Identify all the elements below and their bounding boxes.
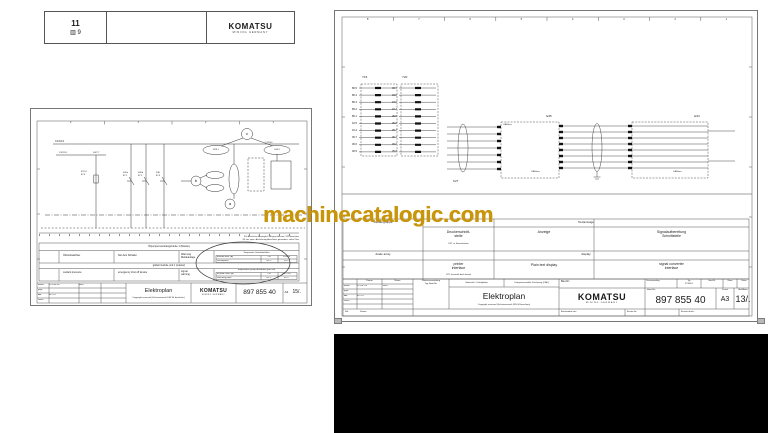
legend-cell: coolant pressure bbox=[63, 271, 113, 274]
mini-table-row: Schaltpunkt 60°C 95°C bbox=[217, 260, 296, 263]
komatsu-logo-subtitle: MINING GERMANY bbox=[559, 302, 645, 305]
titleblock-row: gepr. bbox=[38, 289, 125, 292]
titleblock-row: Norm bbox=[344, 300, 413, 303]
y15-wire-refs: 86.586.486.386.286.116.516.436.736.636.5 bbox=[345, 85, 357, 156]
legend-cell: emergency shut off device bbox=[118, 271, 178, 274]
titleblock-row: Norm bbox=[38, 299, 125, 302]
legend-band-de: Ölpumpenverteilergetriebe 1 (Master) bbox=[39, 245, 299, 248]
sheet-number: 13/. bbox=[734, 294, 752, 304]
can-bus-label: CAN-bus bbox=[503, 124, 512, 127]
connector-label-y20: Y20 bbox=[402, 76, 407, 80]
format-value: A3 bbox=[716, 296, 734, 303]
col-header-datum: Datum bbox=[357, 280, 382, 283]
sheet-number: 11 bbox=[71, 19, 79, 28]
wire-label: X4/7.7 bbox=[93, 152, 99, 155]
book-page-ref: 9 bbox=[78, 30, 81, 36]
legend-cell: Not-Aus Schalter bbox=[118, 254, 178, 257]
legend-cell: Öldruckwächter bbox=[63, 254, 113, 257]
legend-cell: signal warning bbox=[181, 270, 213, 276]
ident-number: 897 855 40 bbox=[237, 289, 282, 296]
connector-label-y15: Y15 bbox=[362, 76, 367, 80]
component-label: S20b 87.2 bbox=[138, 172, 143, 177]
first-use-label: Erstverwendung bbox=[647, 280, 660, 282]
mini-table-title: temperature pump distributor gear unit bbox=[216, 269, 297, 272]
column-ruler: 87654321 bbox=[342, 17, 752, 22]
type-value: PC3000-1 bbox=[677, 283, 701, 285]
titleblock-row: gepr. bbox=[344, 290, 413, 293]
copyright-note: Copyright reserved (Schutzvermerk DIN 34… bbox=[126, 297, 191, 300]
legend-band-en: display bbox=[423, 253, 749, 257]
watermark-text: machinecatalogic.com bbox=[263, 202, 493, 228]
ident-number: 897 855 40 bbox=[645, 295, 716, 306]
legend-note: K27: in Steuerkasten bbox=[423, 243, 494, 246]
datum-label: Datum bbox=[360, 311, 366, 314]
wire-label: X1/X2.6 bbox=[59, 152, 67, 155]
legend-note: K27: beneath dash board bbox=[423, 274, 494, 277]
komatsu-logo-subtitle: MINING GERMANY bbox=[233, 31, 269, 34]
replaced-by-label: Ersetzt durch: bbox=[681, 311, 695, 314]
drawing-title: Elektroplan bbox=[126, 288, 191, 294]
connector-label-k27: K27 bbox=[453, 180, 458, 184]
component-label: B7.10 87.4 bbox=[81, 171, 87, 176]
card-brand-cell: KOMATSU MINING GERMANY bbox=[206, 12, 294, 43]
titleblock-row: Abt. 8121.4 bbox=[38, 294, 125, 297]
right-circuit-linework bbox=[335, 11, 759, 323]
copyright-note: Copyright reserved (Schutzvermerk DIN 34… bbox=[449, 304, 559, 307]
stk-label: Stk. bbox=[345, 311, 349, 314]
cad-note: Computererstellte Zeichnung (CAD) bbox=[504, 282, 559, 285]
sheet-number: 15/. bbox=[293, 289, 301, 295]
sheet-note: X4: Anschluss Analogteil 1/A geschlossen… bbox=[179, 236, 299, 239]
cad-note: Gedruckt f. Schaltpläne bbox=[449, 282, 504, 285]
legend-cell: signal converter interface bbox=[594, 262, 749, 271]
callout-a: a bbox=[227, 201, 234, 206]
mini-table-title: Temperatur Gerätebehälter bbox=[216, 252, 297, 255]
komatsu-logo-subtitle: MINING GERMANY bbox=[192, 294, 235, 296]
komatsu-logo: KOMATSU bbox=[192, 288, 235, 294]
legend-cell: Signalaufbereitung Schnittstelle bbox=[594, 230, 749, 239]
selection-handle-right[interactable] bbox=[757, 318, 765, 324]
connector-label-e35: E35 bbox=[539, 115, 559, 119]
can-bus-label: CAN-bus bbox=[531, 171, 540, 174]
ident-nr-label: Ident-Nr.: bbox=[647, 289, 656, 292]
legend-band-en: global module unit 1 (master) bbox=[39, 264, 299, 267]
name-header: Name bbox=[723, 280, 737, 282]
format-value: A3 bbox=[285, 291, 289, 295]
right-schematic-sheet: 87654321 Y15 Y20 86.586.486.386.286.116.… bbox=[334, 10, 758, 322]
y20-wire-refs: 33.733.634.634.735.535.635.736.736.635.6 bbox=[385, 85, 397, 156]
selection-handle-left[interactable] bbox=[334, 318, 342, 324]
balloon-label: B25.1 bbox=[203, 149, 229, 152]
bus-net-label: C1/X4.6 bbox=[55, 140, 64, 143]
sheet-note: X5: bei spez. Ausführung Anschluss geson… bbox=[179, 239, 299, 242]
redaction-rectangle bbox=[334, 334, 768, 433]
bau-nr-label: Bau-Nr.: bbox=[561, 280, 570, 283]
component-label: S20a 87.1 bbox=[123, 172, 128, 177]
komatsu-logo: KOMATSU bbox=[228, 22, 272, 31]
book-icon: ▥ bbox=[70, 30, 77, 36]
mini-table-row: Einsatz max. (A) 1 B 24V-48 bbox=[217, 256, 296, 259]
legend-cell: Anzeige bbox=[494, 230, 594, 234]
datum-header: Datum bbox=[737, 280, 751, 282]
sheet-ref-card: 11 ▥ 9 KOMATSU MINING GERMANY bbox=[44, 11, 295, 44]
replaces-label: Ersatz für: bbox=[627, 311, 637, 314]
sheet-label: Blatt/Blätter bbox=[734, 289, 752, 291]
type-label: Typ bbox=[677, 280, 701, 282]
mini-table-row: oil prob. max. (A) 1 B 097-750 bbox=[217, 273, 296, 276]
komatsu-logo: KOMATSU bbox=[559, 292, 645, 302]
format-label: Format bbox=[716, 289, 734, 291]
titleblock-row: bearb. 11-JUL-00 Baer bbox=[344, 285, 413, 288]
legend-cell: Warnung Meldeanlage bbox=[181, 253, 213, 259]
titleblock-row: bearb. 11-JUN-98 Baer bbox=[38, 284, 125, 287]
sheet-ref-cell: 11 ▥ 9 bbox=[45, 12, 107, 43]
from-label: Entstanden aus: bbox=[561, 311, 577, 314]
scanned-schematic-canvas: 11 ▥ 9 KOMATSU MINING GERMANY bbox=[0, 0, 768, 433]
callout-c: c bbox=[244, 131, 251, 136]
balloon-net-label: C1/X40 bbox=[265, 142, 272, 145]
mini-table-row: switching point 60°C 95°C bbox=[217, 277, 296, 280]
component-label: S30 87.4 bbox=[156, 172, 160, 177]
ident-header: Ident-Nr. bbox=[701, 280, 723, 282]
drawing-title: Elektroplan bbox=[449, 291, 559, 301]
can-bus-label: CAN-bus bbox=[673, 171, 682, 174]
legend-cell: Druckerschnitt- stelle bbox=[423, 230, 494, 239]
col-header-name: Name bbox=[382, 280, 413, 283]
callout-b: b bbox=[193, 178, 200, 183]
titleblock-row: Abt. 8121.4 bbox=[344, 295, 413, 298]
legend-cell: printer interface bbox=[423, 262, 494, 271]
connector-label-e34: E34 bbox=[687, 115, 707, 119]
legend-cell: Plain text display bbox=[494, 263, 594, 267]
balloon-label: X40.2 bbox=[264, 149, 290, 152]
usage-subheader: Typ Ident-Nr. bbox=[414, 283, 448, 286]
column-ruler: 4321 bbox=[37, 121, 307, 126]
card-spacer bbox=[107, 12, 206, 43]
legend-col1-en: diode array bbox=[343, 253, 423, 257]
